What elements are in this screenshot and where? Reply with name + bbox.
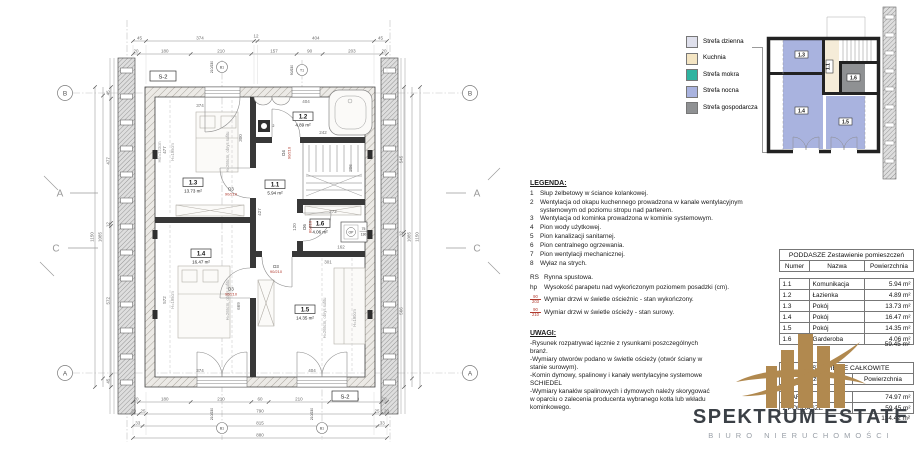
room-number: 1.6 (316, 222, 325, 228)
svg-text:180: 180 (161, 397, 169, 402)
svg-text:404: 404 (312, 36, 320, 41)
floor-plan: 2 45 374 12 404 45 20 (0, 0, 505, 450)
svg-text:90/210: 90/210 (287, 146, 292, 159)
legend-item: 8Wyłaz na strych. (530, 260, 758, 268)
table-row: 1.4Pokój16.47 m² (780, 312, 914, 323)
zone-row: Kuchnia (686, 53, 766, 65)
legend-ref-2: 2 (273, 124, 275, 128)
svg-text:20: 20 (133, 397, 139, 402)
section-tag-bottom: S-2 (332, 391, 358, 401)
legend-item: 6Pion centralnego ogrzewania. (530, 242, 758, 250)
room-number: 1.4 (197, 252, 206, 258)
svg-text:H=265cm, obrys sufitu: H=265cm, obrys sufitu (322, 298, 327, 339)
svg-text:90/210: 90/210 (270, 269, 283, 274)
svg-text:D4: D4 (281, 150, 286, 156)
room-number: 1.1 (271, 183, 280, 189)
logo-mark-icon (736, 330, 866, 410)
svg-text:20: 20 (381, 49, 387, 54)
svg-text:90/210: 90/210 (225, 192, 238, 197)
company-logo: SPEKTRUM ESTATE BIURO NIERUCHOMOŚCI (688, 330, 914, 450)
legend-item: 2Wentylacja od okapu kuchennego prowadzo… (530, 199, 758, 215)
svg-text:427: 427 (257, 208, 262, 216)
key-leader-line (752, 47, 762, 48)
svg-text:1.1: 1.1 (826, 63, 832, 70)
svg-text:C: C (52, 244, 59, 255)
table-row: 1.2Łazienka4.89 m² (780, 290, 914, 301)
svg-text:162: 162 (337, 245, 345, 250)
svg-text:B: B (468, 91, 472, 98)
svg-text:A: A (468, 371, 473, 378)
svg-text:1.4: 1.4 (798, 109, 805, 115)
svg-text:C: C (473, 244, 480, 255)
svg-text:90: 90 (307, 49, 313, 54)
roof-eave-right (381, 58, 398, 414)
svg-text:12: 12 (253, 34, 259, 39)
svg-text:374: 374 (196, 103, 204, 108)
svg-text:566: 566 (398, 307, 403, 315)
roof-eave-left (118, 58, 135, 414)
note-line: -Wymiary kanałów spalinowych i dymowych … (530, 388, 710, 412)
legend-item: 1Słup żelbetowy w ściance kolankowej. (530, 190, 758, 198)
logo-name: SPEKTRUM ESTATE (688, 406, 914, 429)
svg-text:374: 374 (196, 36, 204, 41)
svg-text:210: 210 (217, 397, 225, 402)
zone-swatch (686, 102, 698, 114)
svg-text:157: 157 (270, 49, 278, 54)
note-line: -Wymiary otworów podano w świetle oścież… (530, 356, 710, 372)
svg-text:A: A (474, 189, 481, 200)
svg-text:20: 20 (381, 397, 387, 402)
table-title-row: PODDASZE Zestawienie pomieszczeń (780, 250, 914, 261)
svg-text:210: 210 (217, 49, 225, 54)
svg-text:404: 404 (302, 99, 310, 104)
svg-text:1085: 1085 (97, 231, 102, 242)
svg-text:210/230: 210/230 (210, 408, 214, 420)
svg-text:T1: T1 (300, 68, 304, 72)
svg-text:477: 477 (105, 157, 110, 165)
zone-row: Strefa gospodarcza (686, 102, 766, 114)
svg-text:1150: 1150 (414, 232, 419, 242)
roof-window-op: OP 75 130 (341, 222, 368, 242)
svg-text:572: 572 (105, 296, 110, 304)
svg-text:45: 45 (137, 36, 143, 41)
svg-text:1.6: 1.6 (850, 76, 857, 82)
svg-text:1.3: 1.3 (798, 53, 805, 59)
bathtub (329, 90, 372, 135)
zone-swatch (686, 69, 698, 81)
svg-text:A: A (63, 371, 68, 378)
svg-text:572: 572 (162, 296, 167, 304)
zone-row: Strefa nocna (686, 86, 766, 98)
legend-item: 3Wentylacja od kominka prowadzona w komi… (530, 215, 758, 223)
svg-text:12: 12 (105, 222, 110, 228)
key-leader-line (762, 47, 763, 153)
svg-text:1085: 1085 (406, 231, 411, 242)
zone-swatch (686, 86, 698, 98)
svg-text:206: 206 (348, 164, 353, 172)
svg-text:300: 300 (238, 134, 243, 142)
svg-text:880: 880 (256, 433, 264, 438)
room-number: 1.5 (301, 308, 310, 314)
svg-text:20: 20 (384, 409, 390, 414)
svg-text:545: 545 (398, 155, 403, 163)
svg-text:1150: 1150 (89, 232, 94, 242)
svg-text:203: 203 (348, 49, 356, 54)
svg-text:OP: OP (349, 230, 355, 234)
legend-door-symbol-finished: 90203 Wymiar drzwi w świetle ościeżnic -… (530, 295, 758, 305)
legend-item: 7Pion wentylacji mechanicznej. (530, 251, 758, 259)
svg-text:669: 669 (236, 302, 241, 310)
svg-text:45: 45 (105, 378, 110, 384)
svg-text:404: 404 (308, 368, 316, 373)
svg-text:242: 242 (319, 130, 327, 135)
legend-door-symbol-raw: 90210 Wymiar drzwi w świetle ościeży - s… (530, 308, 758, 318)
svg-text:180: 180 (161, 49, 169, 54)
legend-item: 5Pion kanalizacji sanitarnej. (530, 233, 758, 241)
zone-row: Strefa mokra (686, 69, 766, 81)
note-line: -Komin dymowy, spalinowy i kanały wentyl… (530, 372, 710, 388)
svg-text:Hśr=123cm: Hśr=123cm (157, 141, 162, 163)
staircase (303, 143, 362, 199)
room-area: 4.89 m² (295, 123, 311, 128)
svg-text:12: 12 (398, 231, 403, 237)
svg-text:130: 130 (361, 233, 367, 237)
table-gap-row (780, 272, 914, 279)
room-number: 1.2 (299, 115, 308, 121)
table-header-row: Numer Nazwa Powierzchnia (780, 261, 914, 272)
door-dim-fraction: 90210 (530, 308, 544, 318)
svg-text:120: 120 (292, 223, 297, 231)
svg-text:25: 25 (140, 409, 146, 414)
svg-text:75: 75 (362, 227, 366, 231)
svg-text:45: 45 (105, 90, 110, 96)
svg-text:80/210: 80/210 (308, 220, 313, 233)
svg-text:S-2: S-2 (340, 395, 349, 401)
svg-text:1.5: 1.5 (842, 120, 849, 126)
blueprint-sheet: 2 45 374 12 404 45 20 (0, 0, 914, 450)
zone-swatch (686, 53, 698, 65)
room-number: 1.3 (189, 181, 198, 187)
svg-text:D6: D6 (302, 224, 307, 230)
washbasins (254, 97, 290, 105)
svg-text:20: 20 (133, 49, 139, 54)
mini-zone-plan: 1.3 1.4 1.5 1.1 1.6 (765, 5, 905, 185)
svg-text:210/230: 210/230 (210, 61, 214, 73)
svg-text:477: 477 (162, 146, 167, 154)
svg-text:33: 33 (135, 421, 141, 426)
svg-text:A: A (57, 189, 64, 200)
legend-key-hp: hpWysokość parapetu nad wykończonym pozi… (530, 284, 758, 292)
svg-text:33: 33 (380, 421, 386, 426)
zone-swatch (686, 36, 698, 48)
svg-text:272: 272 (329, 209, 337, 214)
svg-text:210/230: 210/230 (310, 408, 314, 420)
table-row: 1.1Komunikacja5.94 m² (780, 279, 914, 290)
legend-title: LEGENDA: (530, 180, 758, 187)
svg-text:210: 210 (295, 397, 303, 402)
svg-text:H=265cm, obrys sufitu: H=265cm, obrys sufitu (225, 132, 230, 173)
zone-color-key: Strefa dzienna Kuchnia Strefa mokra Stre… (686, 36, 766, 119)
svg-text:S-2: S-2 (158, 75, 167, 81)
room-area: 5.94 m² (267, 191, 283, 196)
svg-text:60: 60 (257, 397, 263, 402)
section-cut-letters: A C A C (52, 189, 480, 255)
svg-text:H=195cm: H=195cm (170, 143, 175, 161)
svg-text:374: 374 (196, 368, 204, 373)
section-tag-top: S-2 (150, 71, 176, 81)
svg-text:790: 790 (256, 409, 264, 414)
room-area: 13.73 m² (184, 189, 202, 194)
svg-text:H=195cm: H=195cm (170, 291, 175, 309)
room-area: 16.47 m² (192, 260, 210, 265)
svg-text:B1: B1 (220, 426, 224, 430)
room-area: 14.35 m² (296, 316, 314, 321)
svg-text:20: 20 (131, 409, 137, 414)
note-line: -Rysunek rozpatrywać łącznie z rysunkami… (530, 340, 710, 356)
svg-text:B: B (63, 91, 67, 98)
logo-subtitle: BIURO NIERUCHOMOŚCI (688, 431, 914, 440)
svg-text:45: 45 (378, 36, 384, 41)
svg-text:B1: B1 (320, 426, 324, 430)
svg-text:815: 815 (256, 421, 264, 426)
svg-text:H=190cm: H=190cm (352, 309, 357, 327)
svg-text:25: 25 (374, 409, 380, 414)
svg-text:301: 301 (324, 260, 332, 265)
furniture (176, 112, 365, 344)
room-area: 4.06 m² (312, 230, 328, 235)
svg-text:90/230: 90/230 (290, 65, 294, 75)
svg-text:B1: B1 (220, 65, 224, 69)
mini-eave-strip (883, 7, 896, 179)
legend-item: 4Pion wody użytkowej. (530, 224, 758, 232)
legend-key-rs: RSRynna spustowa. (530, 274, 758, 282)
door-dim-fraction: 90203 (530, 295, 544, 305)
svg-text:90/210: 90/210 (225, 292, 238, 297)
table-row: 1.3Pokój13.73 m² (780, 301, 914, 312)
